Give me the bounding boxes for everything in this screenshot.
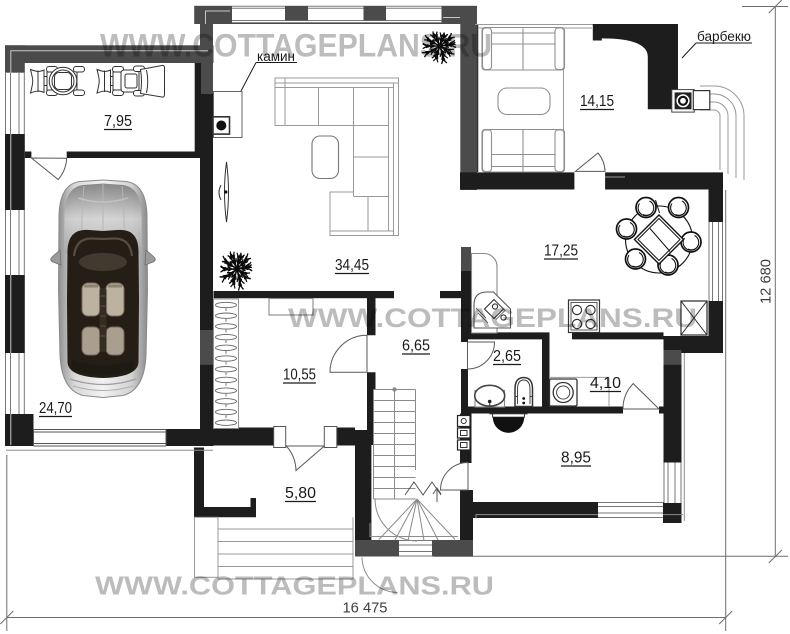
svg-text:2,65: 2,65: [493, 348, 521, 365]
svg-text:барбекю: барбекю: [697, 29, 751, 44]
svg-text:34,45: 34,45: [335, 257, 369, 274]
svg-text:WWW.COTTAGEPLANS.RU: WWW.COTTAGEPLANS.RU: [95, 571, 494, 601]
svg-text:24,70: 24,70: [39, 400, 72, 417]
svg-text:12 680: 12 680: [759, 259, 775, 304]
svg-text:8,95: 8,95: [561, 450, 591, 467]
svg-text:6,65: 6,65: [402, 338, 430, 355]
svg-text:7,95: 7,95: [104, 113, 132, 130]
svg-text:WWW.COTTAGEPLANS.RU: WWW.COTTAGEPLANS.RU: [100, 28, 492, 64]
svg-text:14,15: 14,15: [580, 93, 614, 110]
svg-text:16 475: 16 475: [343, 601, 388, 617]
svg-text:10,55: 10,55: [283, 367, 316, 384]
svg-text:17,25: 17,25: [544, 243, 578, 260]
svg-text:WWW.COTTAGEPLANS.RU: WWW.COTTAGEPLANS.RU: [288, 303, 697, 333]
svg-text:4,10: 4,10: [590, 375, 621, 392]
svg-text:5,80: 5,80: [285, 485, 316, 502]
